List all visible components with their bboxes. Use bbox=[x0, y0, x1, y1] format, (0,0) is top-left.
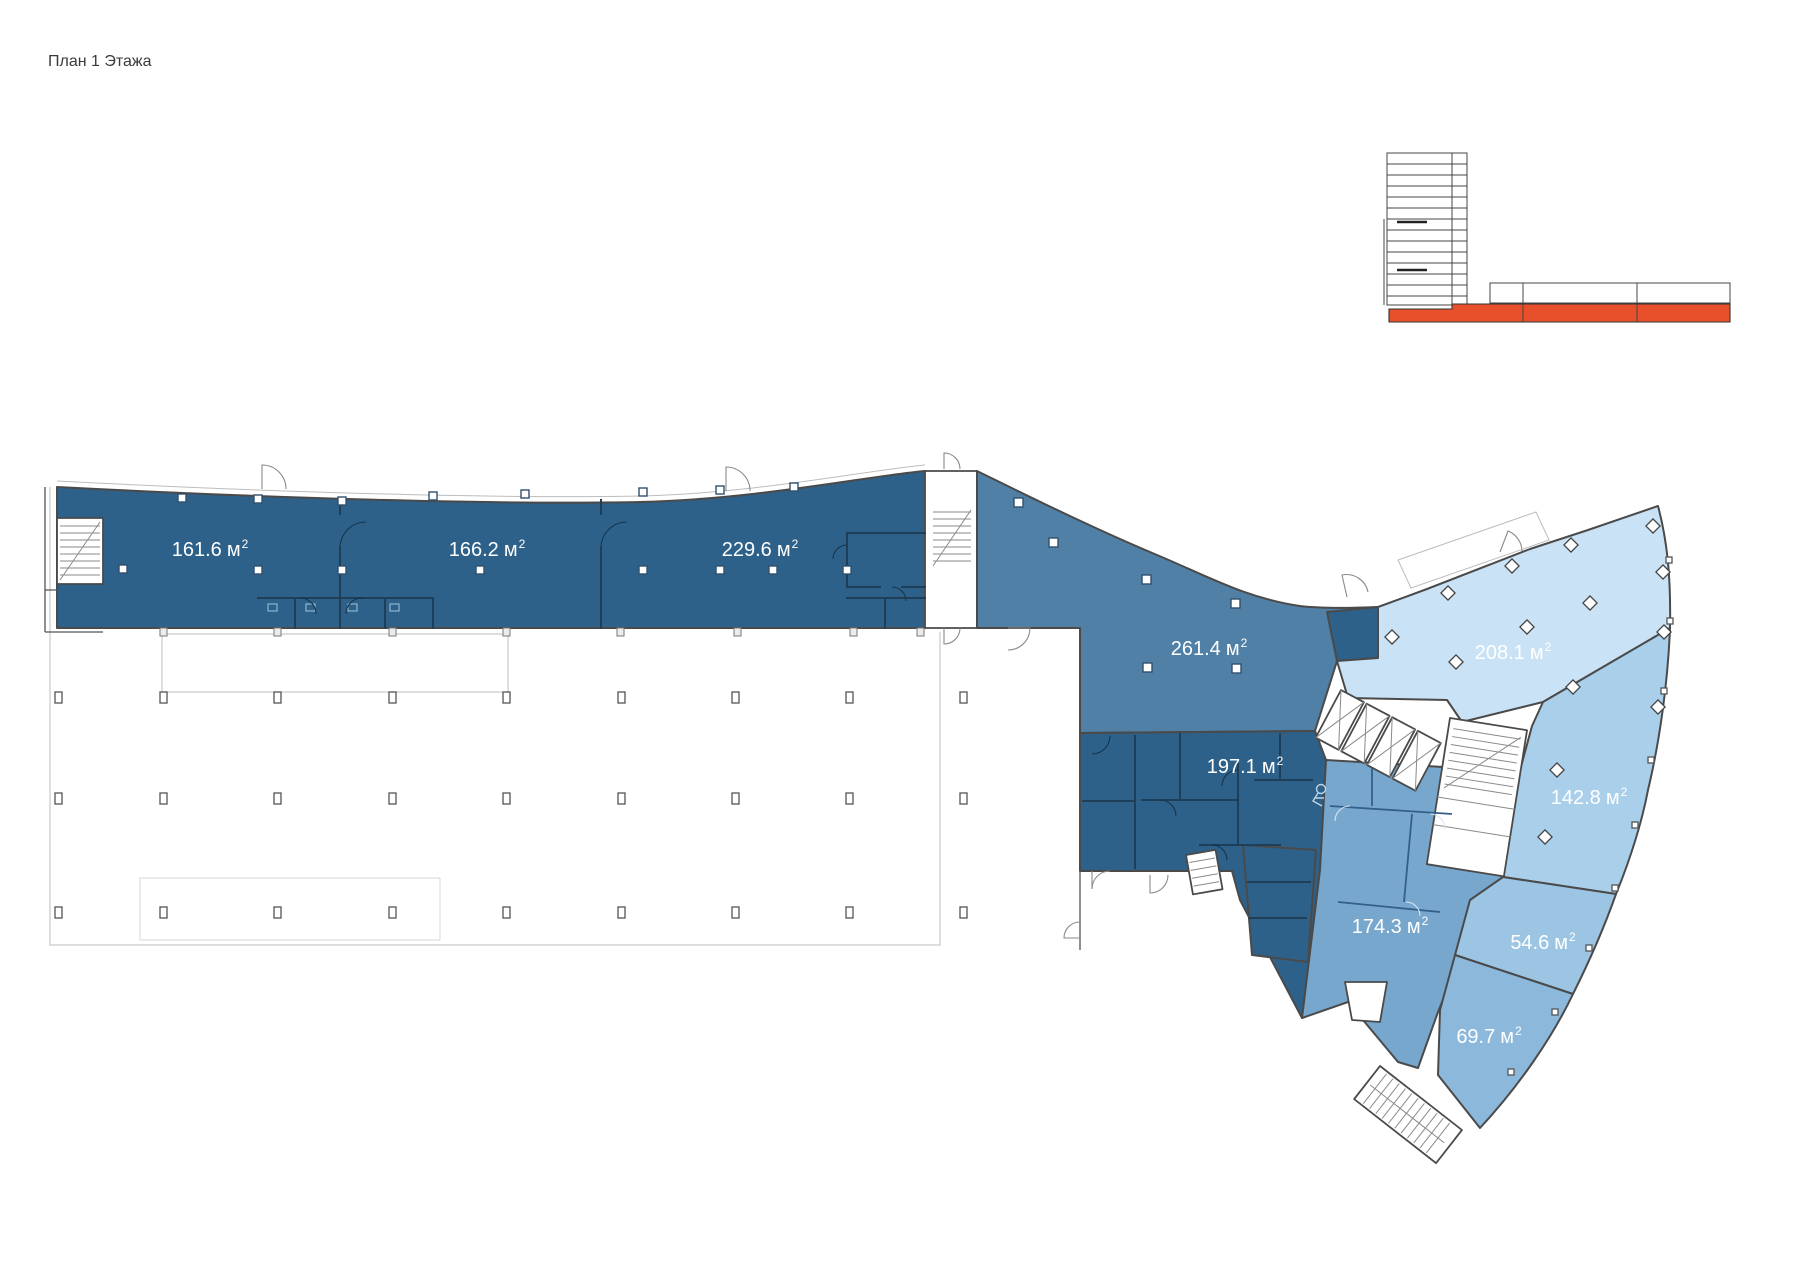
stair-core-left bbox=[925, 471, 977, 628]
shaft-void bbox=[1345, 982, 1387, 1022]
label-166-2: 166.2м2 bbox=[449, 537, 526, 561]
label-174-3: 174.3м2 bbox=[1352, 914, 1429, 938]
floor-plan-page: 161.6м2 166.2м2 229.6м2 261.4м2 197.1м2 … bbox=[0, 0, 1800, 1273]
door-band-2 bbox=[726, 467, 750, 491]
door-exterior-1 bbox=[1092, 871, 1110, 889]
label-69-7: 69.7м2 bbox=[1456, 1024, 1522, 1048]
room-261-4 bbox=[977, 471, 1378, 733]
key-current-floor bbox=[1389, 304, 1730, 322]
door-wing-2 bbox=[1500, 531, 1522, 552]
floor-plan-svg: 161.6м2 166.2м2 229.6м2 261.4м2 197.1м2 … bbox=[0, 0, 1800, 1273]
door-band-1 bbox=[262, 465, 286, 489]
page-title: План 1 Этажа bbox=[48, 53, 152, 70]
label-197-1: 197.1м2 bbox=[1207, 754, 1284, 778]
exterior-stair-small bbox=[1186, 850, 1222, 895]
label-161-6: 161.6м2 bbox=[172, 537, 249, 561]
label-208-1: 208.1м2 bbox=[1475, 640, 1552, 664]
label-229-6: 229.6м2 bbox=[722, 537, 799, 561]
door-notch bbox=[1008, 628, 1030, 650]
building-key bbox=[1384, 153, 1730, 322]
vestibule-dark bbox=[1327, 607, 1378, 661]
key-lowrise bbox=[1490, 283, 1730, 303]
label-54-6: 54.6м2 bbox=[1510, 930, 1576, 954]
key-tower bbox=[1387, 153, 1467, 305]
column-grid bbox=[55, 692, 967, 918]
label-261-4: 261.4м2 bbox=[1171, 636, 1248, 660]
door-wing-1 bbox=[1342, 575, 1368, 597]
door-exterior-2 bbox=[1150, 875, 1168, 893]
terrace-upper bbox=[162, 634, 508, 692]
label-142-8: 142.8м2 bbox=[1551, 785, 1628, 809]
wc-cluster-dark bbox=[1243, 845, 1316, 962]
door-porch bbox=[1064, 922, 1080, 938]
rooms bbox=[57, 471, 1670, 1128]
